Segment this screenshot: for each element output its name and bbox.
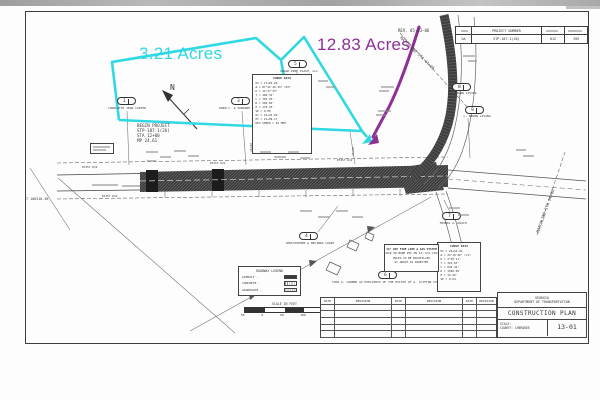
total-sheets-cell: 195 bbox=[565, 35, 587, 43]
plan-title: CONSTRUCTION PLAN bbox=[498, 308, 586, 320]
parcel-owner-name: CHRISTOPHER & MELINDA COURT bbox=[268, 242, 352, 246]
illegible-callout bbox=[146, 151, 158, 153]
asphalt-swatch-icon bbox=[284, 275, 297, 280]
illegible-callout bbox=[318, 216, 330, 218]
parcel-owner-name: L. BROWN LIVING bbox=[432, 92, 494, 96]
illegible-callout bbox=[568, 30, 582, 32]
parcel-number: 3 bbox=[237, 99, 240, 104]
illegible-callout bbox=[288, 151, 299, 153]
scanner-artifact-band bbox=[0, 0, 600, 6]
construction-plan-sheet: REV. 05-03-06 PROJECT NUMBER GA STP-187-… bbox=[0, 0, 600, 400]
parcel-number: 8 bbox=[458, 85, 461, 90]
curve-data-box-1: CURVE DATA PI = 17+04.26 Δ = 87°41'26.36… bbox=[252, 74, 312, 154]
parcel-marker: 6 bbox=[378, 271, 397, 279]
legend-row: CONCRETE - bbox=[242, 281, 297, 286]
revision-header-cell: DATE bbox=[392, 298, 406, 305]
illegible-callout bbox=[461, 30, 468, 32]
aggregate-swatch-icon bbox=[284, 288, 297, 293]
roadway-legend: ROADWAY LEGEND ASPHALT - CONCRETE - AGGR… bbox=[238, 266, 301, 296]
revision-date-label: REV. 05-03-06 bbox=[398, 29, 429, 34]
exist-rw-label: EXIST R/W bbox=[210, 162, 225, 165]
project-number-table: PROJECT NUMBER GA STP-187-1(26) 012 195 bbox=[455, 26, 588, 44]
curve-data-line: DES SPEED = 45 MPH bbox=[253, 121, 311, 125]
sheet-no-cell: 012 bbox=[542, 35, 565, 43]
county-label: COUNTY: CHEROKEE bbox=[500, 326, 547, 330]
parcel-owner-name: TONI A. CONNER AS EXECUTRIX OF THE ESTAT… bbox=[322, 281, 454, 285]
station-label: 20+00 bbox=[352, 147, 356, 156]
legend-row: ASPHALT - bbox=[242, 275, 297, 280]
revision-header-cell: DATE bbox=[321, 298, 335, 305]
parcel-marker: 9 bbox=[465, 106, 484, 114]
legend-label: AGGREGATE - bbox=[242, 288, 262, 292]
project-number-cell: STP-187-1(26) bbox=[472, 35, 542, 43]
illegible-callout bbox=[93, 149, 106, 151]
illegible-callout bbox=[318, 80, 328, 82]
illegible-callout bbox=[352, 216, 363, 218]
scale-title: SCALE IN FEET bbox=[236, 302, 333, 306]
title-block-bottom: SCALE: COUNTY: CHEROKEE 13-01 bbox=[498, 320, 586, 336]
illegible-callout bbox=[122, 185, 140, 187]
illegible-callout bbox=[449, 207, 460, 209]
illegible-callout bbox=[174, 150, 186, 152]
legend-title: ROADWAY LEGEND bbox=[242, 269, 297, 273]
scale-ticks: 50 0 50 100 150 bbox=[241, 313, 328, 317]
parcel-number: 7 bbox=[448, 214, 451, 219]
scale-bar: SCALE IN FEET 50 0 50 100 150 bbox=[236, 302, 333, 317]
parcel-number: 5 bbox=[294, 62, 297, 67]
parcel-marker: 4 bbox=[299, 232, 318, 240]
curve-data-title: CURVE DATA bbox=[438, 244, 480, 248]
curve-data-title: CURVE DATA bbox=[253, 76, 311, 80]
parcel-marker: 5 bbox=[288, 60, 307, 68]
parcel-marker: 3 bbox=[231, 97, 250, 105]
parcel-number: 6 bbox=[384, 273, 387, 278]
illegible-callout bbox=[523, 155, 534, 157]
agency-name: GEORGIA DEPARTMENT OF TRANSPORTATION bbox=[498, 293, 586, 308]
illegible-callout bbox=[93, 146, 110, 148]
illegible-callout bbox=[468, 60, 477, 62]
revision-table: DATE REVISION DATE REVISION DATE REVISIO… bbox=[320, 297, 497, 338]
agency-line: DEPARTMENT OF TRANSPORTATION bbox=[498, 300, 586, 304]
utility-note-box: 16" DIP FIRE LINE & GAS SYSTEM JACK OR B… bbox=[384, 244, 439, 272]
parcel-owner-name: L. BROWN LIVING bbox=[446, 115, 508, 119]
coordinate-label: 7 100318.38 bbox=[26, 197, 48, 201]
illegible-callout bbox=[458, 214, 469, 216]
area-label-purple: 12.83 Acres bbox=[317, 35, 410, 55]
legend-label: CONCRETE - bbox=[242, 281, 260, 285]
parcel-marker: 1 bbox=[117, 97, 136, 105]
revision-header-cell: REVISION bbox=[477, 298, 496, 305]
title-block: GEORGIA DEPARTMENT OF TRANSPORTATION CON… bbox=[497, 292, 587, 338]
begin-project-line: MP 24.61 bbox=[137, 138, 170, 143]
scale-tick: 50 bbox=[241, 313, 245, 317]
state-cell: GA bbox=[456, 35, 472, 43]
illegible-callout bbox=[260, 151, 271, 153]
curve-data-box-2: CURVE DATA PI = 26+10.44 Δ = 24°18'40" (… bbox=[437, 242, 481, 292]
revision-header-cell: DATE bbox=[463, 298, 477, 305]
illegible-callout bbox=[300, 210, 312, 212]
concrete-swatch-icon bbox=[284, 281, 297, 286]
scale-county-cell: SCALE: COUNTY: CHEROKEE bbox=[498, 320, 548, 336]
scale-tick: 0 bbox=[261, 313, 263, 317]
parcel-owner-name: THOMAS A. ROACH bbox=[418, 222, 488, 226]
scanner-artifact-corner bbox=[566, 6, 600, 9]
exist-rw-label: EXIST R/W bbox=[82, 166, 97, 169]
sheet-number: 13-01 bbox=[548, 320, 586, 336]
illegible-callout bbox=[379, 90, 389, 92]
illegible-callout bbox=[381, 86, 394, 88]
area-label-cyan: 3.21 Acres bbox=[139, 44, 222, 64]
parcel-number: 1 bbox=[123, 99, 126, 104]
scale-tick: 100 bbox=[300, 313, 305, 317]
illegible-callout bbox=[463, 55, 475, 57]
begin-project-note: BEGIN PROJECT STP-187-1(26) STA 12+00 MP… bbox=[137, 123, 170, 143]
illegible-callout bbox=[326, 86, 335, 88]
parcel-marker: 8 bbox=[452, 83, 471, 91]
illegible-callout bbox=[336, 210, 348, 212]
illegible-callout bbox=[546, 30, 558, 32]
illegible-callout bbox=[300, 157, 310, 159]
parcel-number: 9 bbox=[471, 108, 474, 113]
illegible-callout bbox=[378, 110, 391, 112]
parcel-number: 4 bbox=[305, 234, 308, 239]
parcel-owner-name: CHARLOTTE JEAN CARTER bbox=[90, 107, 164, 111]
illegible-callout bbox=[160, 156, 171, 158]
legend-row: AGGREGATE - bbox=[242, 288, 297, 293]
legend-label: ASPHALT - bbox=[242, 275, 258, 279]
illegible-callout bbox=[274, 156, 286, 158]
illegible-callout bbox=[376, 114, 386, 116]
exist-rw-label: EXIST R/W bbox=[337, 159, 352, 162]
scale-tick: 50 bbox=[280, 313, 284, 317]
illegible-callout bbox=[516, 149, 526, 151]
curve-data-line: SE = 0.04 bbox=[438, 277, 480, 281]
revision-header-cell: REVISION bbox=[406, 298, 463, 305]
north-label: N bbox=[170, 83, 175, 92]
revision-header-cell: REVISION bbox=[335, 298, 392, 305]
note-line: W/ GROUT AS DIRECTED bbox=[385, 260, 438, 264]
exist-rw-label: EXIST R/W bbox=[102, 195, 117, 198]
illegible-callout bbox=[188, 155, 199, 157]
illegible-callout bbox=[147, 160, 156, 162]
project-number-header: PROJECT NUMBER bbox=[472, 27, 542, 35]
illegible-callout bbox=[92, 184, 118, 186]
